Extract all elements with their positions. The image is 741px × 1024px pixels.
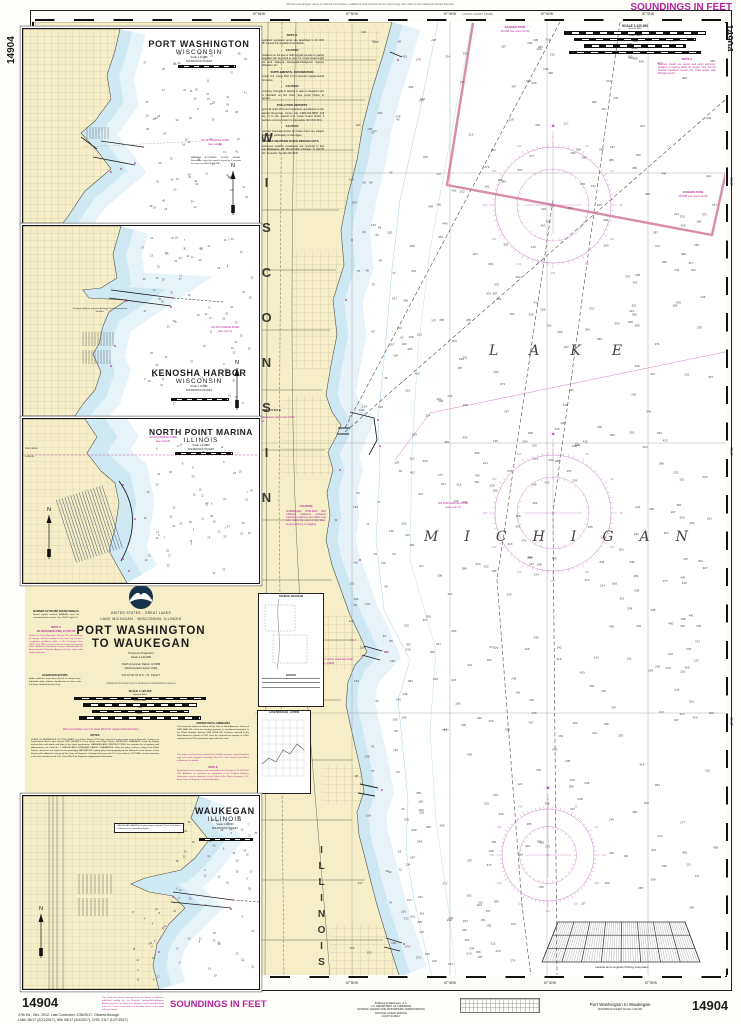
source-table-lines [262,684,320,688]
svg-text:437: 437 [529,721,534,725]
svg-text:✶: ✶ [550,123,555,130]
svg-text:368: 368 [528,431,533,435]
svg-text:413: 413 [594,656,599,660]
svg-text:264: 264 [523,440,528,444]
svg-text:411: 411 [695,874,700,878]
svg-text:293: 293 [536,768,541,772]
svg-text:155: 155 [387,230,392,234]
svg-text:195: 195 [662,864,667,868]
svg-text:154: 154 [352,200,357,204]
svg-text:389: 389 [603,218,608,222]
svg-text:201: 201 [493,793,498,797]
svg-text:75: 75 [357,269,361,273]
svg-text:435: 435 [597,425,602,429]
svg-text:242: 242 [557,645,562,649]
svg-text:168: 168 [373,40,378,44]
svg-text:180: 180 [551,579,556,583]
svg-text:270: 270 [490,853,495,857]
svg-text:414: 414 [629,309,634,313]
svg-text:35: 35 [375,233,379,237]
svg-text:348: 348 [428,204,433,208]
svg-text:292: 292 [447,394,452,398]
svg-text:300: 300 [612,582,617,586]
svg-text:445: 445 [402,692,407,696]
svg-text:286: 286 [527,555,532,559]
svg-text:392: 392 [589,684,594,688]
svg-text:441: 441 [689,614,694,618]
svg-text:398: 398 [576,147,581,151]
svg-text:205: 205 [635,273,640,277]
svg-text:264: 264 [463,919,468,923]
svg-text:447: 447 [529,562,534,566]
svg-text:423: 423 [663,438,668,442]
svg-text:314: 314 [534,573,539,577]
svg-text:247: 247 [504,409,509,413]
svg-text:438: 438 [650,608,655,612]
svg-text:200: 200 [515,691,520,695]
danger-zone-label-2: DANGER ZONE334.845 (see note A and B) [666,191,720,198]
svg-text:228: 228 [431,38,436,42]
svg-text:376: 376 [625,275,630,279]
svg-text:346: 346 [646,409,651,413]
svg-text:60: 60 [400,336,404,340]
inset-port-washington: 3629411832133725372014213524123039403027… [22,28,260,224]
svg-text:330: 330 [489,719,494,723]
svg-text:236: 236 [696,624,701,628]
svg-text:319: 319 [511,922,516,926]
svg-text:339: 339 [505,727,510,731]
svg-text:371: 371 [695,640,700,644]
svg-text:289: 289 [466,318,471,322]
svg-text:356: 356 [476,950,481,954]
land-notes-column: NOTE DRegulated navigation areas are des… [260,34,324,158]
inset-scale-bar [171,398,229,401]
svg-text:248: 248 [648,668,653,672]
chart-number-left-edge: 14904 [6,36,17,64]
svg-text:81: 81 [383,634,387,638]
svg-text:253: 253 [618,734,623,738]
svg-text:235: 235 [540,308,545,312]
svg-text:384: 384 [655,783,660,787]
svg-text:323: 323 [643,445,648,449]
svg-text:204: 204 [674,268,679,272]
datum-line2: (World Geodetic System 1984) [91,667,191,670]
svg-text:N: N [235,360,239,366]
svg-text:301: 301 [452,339,457,343]
svg-text:282: 282 [694,243,699,247]
svg-text:203: 203 [486,292,491,296]
svg-text:362: 362 [532,501,537,505]
svg-text:403: 403 [541,224,546,228]
svg-text:273: 273 [416,956,421,960]
svg-text:252: 252 [684,373,689,377]
svg-text:396: 396 [592,100,597,104]
svg-text:238: 238 [447,918,452,922]
svg-text:434: 434 [552,557,557,561]
svg-text:390: 390 [628,320,633,324]
svg-text:298: 298 [635,364,640,368]
svg-text:288: 288 [410,244,415,248]
svg-text:269: 269 [631,393,636,397]
svg-text:279: 279 [484,165,489,169]
svg-text:330: 330 [517,144,522,148]
svg-text:430: 430 [657,431,662,435]
svg-text:321: 321 [448,592,453,596]
svg-text:449: 449 [433,677,438,681]
svg-text:86: 86 [386,650,390,654]
noaa-logo [128,584,154,610]
svg-text:235: 235 [580,182,585,186]
svg-text:322: 322 [541,207,546,211]
svg-text:224: 224 [600,584,605,588]
svg-text:159: 159 [391,941,396,945]
svg-text:N: N [39,906,43,912]
ndz-label: NO DISCHARGE ZONE(see note S) [201,326,249,333]
svg-text:224: 224 [572,479,577,483]
svg-text:222: 222 [635,505,640,509]
svg-text:98: 98 [355,774,359,778]
svg-text:276: 276 [416,58,421,62]
svg-text:42: 42 [371,330,375,334]
svg-text:238: 238 [599,148,604,152]
svg-text:167: 167 [419,930,424,934]
svg-text:343: 343 [476,562,481,566]
svg-text:401: 401 [515,525,520,529]
svg-text:209: 209 [423,155,428,159]
svg-text:315: 315 [556,657,561,661]
svg-text:187: 187 [457,366,462,370]
svg-text:250: 250 [645,192,650,196]
svg-text:340: 340 [537,47,542,51]
svg-text:195: 195 [425,952,430,956]
svg-text:361: 361 [558,734,563,738]
see-chart-note-milwaukee: For Milwaukee Harbor see Chart 14924 [257,416,297,423]
svg-text:355: 355 [439,318,444,322]
svg-text:301: 301 [467,663,472,667]
svg-text:330: 330 [518,805,523,809]
svg-text:207: 207 [473,252,478,256]
svg-text:225: 225 [702,475,707,479]
svg-text:54: 54 [369,181,373,185]
svg-text:140: 140 [396,698,401,702]
svg-text:319: 319 [406,647,411,651]
svg-text:120: 120 [594,881,599,885]
svg-text:277: 277 [444,728,449,732]
svg-text:257: 257 [486,909,491,913]
chart-number-bottom-left: 14904 [22,995,58,1010]
svg-text:168: 168 [366,814,371,818]
svg-text:146: 146 [353,597,358,601]
svg-text:63: 63 [354,603,358,607]
svg-text:357: 357 [708,375,713,379]
svg-text:325: 325 [503,242,508,246]
svg-text:387: 387 [539,885,544,889]
facilities-note: Plans and facilities: see U.S. Coast Pil… [63,728,153,731]
svg-text:75: 75 [371,769,375,773]
svg-text:270: 270 [483,511,488,515]
svg-text:331: 331 [517,168,522,172]
svg-text:282: 282 [673,304,678,308]
svg-text:175: 175 [365,602,370,606]
svg-text:313: 313 [585,578,590,582]
ndz-label: NO DISCHARGE ZONE(see note B) [141,436,185,443]
svg-text:324: 324 [405,863,410,867]
print-calibration-strip [460,998,540,1013]
svg-text:427: 427 [418,895,423,899]
pipeline-caution: CAUTIONSUBMERGED PIPELINES AND CABLES: a… [286,505,326,529]
svg-text:225: 225 [417,333,422,337]
svg-text:227: 227 [671,510,676,514]
stability-note: The paper used has been selected for sta… [177,754,249,763]
svg-text:250: 250 [605,881,610,885]
soundings-banner-bottom: SOUNDINGS IN FEET [170,999,267,1010]
svg-text:292: 292 [547,324,552,328]
svg-text:207: 207 [436,642,441,646]
svg-text:22: 22 [399,868,403,872]
inset-note: Southport Marina: transient dockage, fue… [71,308,129,314]
svg-text:210: 210 [517,262,522,266]
svg-text:387: 387 [680,624,685,628]
svg-text:71: 71 [366,522,370,526]
svg-text:244: 244 [448,962,453,966]
svg-text:276: 276 [532,711,537,715]
svg-text:333: 333 [488,262,493,266]
svg-text:296: 296 [451,629,456,633]
svg-text:215: 215 [484,801,489,805]
svg-text:449: 449 [442,222,447,226]
svg-text:120: 120 [355,123,360,127]
source-table-lines [262,678,320,683]
svg-text:239: 239 [459,357,464,361]
svg-text:406: 406 [403,299,408,303]
svg-text:231: 231 [589,306,594,310]
state-line-label-top: WISCONSIN [25,448,38,451]
svg-text:150: 150 [585,570,590,574]
svg-text:360: 360 [632,166,637,170]
source-diagram-box: SOURCE DIAGRAM SOURCE [258,593,324,707]
svg-text:290: 290 [549,458,554,462]
svg-text:194: 194 [491,148,496,152]
svg-text:122: 122 [349,619,354,623]
svg-text:446: 446 [639,59,644,63]
inset-title: WAUKEGAN ILLINOIS Scale 1:10,000 SOUNDIN… [193,806,257,830]
state-name-wisconsin: WISCONSIN [259,130,274,580]
svg-text:315: 315 [491,942,496,946]
svg-text:188: 188 [681,617,686,621]
svg-text:337: 337 [431,319,436,323]
svg-text:37: 37 [392,271,396,275]
svg-text:446: 446 [661,171,666,175]
svg-text:277: 277 [663,579,668,583]
svg-text:210: 210 [518,902,523,906]
svg-text:167: 167 [392,297,397,301]
svg-text:361: 361 [419,912,424,916]
inset-north-point-marina: 1314241230271211762312201715192224262123… [22,418,260,584]
svg-text:321: 321 [418,492,423,496]
svg-text:386: 386 [548,71,553,75]
svg-text:220: 220 [417,920,422,924]
svg-text:235: 235 [570,778,575,782]
svg-text:372: 372 [463,52,468,56]
svg-text:453: 453 [411,269,416,273]
state-line-label-bottom: ILLINOIS [25,456,34,459]
svg-text:318: 318 [529,698,534,702]
svg-text:209: 209 [426,615,431,619]
svg-text:295: 295 [565,759,570,763]
svg-text:438: 438 [609,625,614,629]
svg-text:202: 202 [410,457,415,461]
svg-text:132: 132 [354,679,359,683]
svg-text:402: 402 [689,521,694,525]
svg-text:329: 329 [679,515,684,519]
svg-text:26: 26 [363,230,367,234]
inset-title: PORT WASHINGTON WISCONSIN Scale 1:10,000… [143,39,255,63]
svg-text:217: 217 [564,122,569,126]
svg-text:366: 366 [659,462,664,466]
svg-text:185: 185 [696,219,701,223]
svg-text:252: 252 [573,721,578,725]
svg-text:314: 314 [445,55,450,59]
svg-text:330: 330 [422,459,427,463]
svg-text:382: 382 [526,79,531,83]
svg-text:256: 256 [461,723,466,727]
svg-text:265: 265 [634,588,639,592]
svg-text:424: 424 [517,782,522,786]
svg-text:300: 300 [497,825,502,829]
svg-text:376: 376 [575,443,580,447]
update-note: This chart has been corrected from the N… [102,997,164,1012]
lake-levels-box: LAKE MICHIGAN - HURON [257,710,311,794]
svg-text:293: 293 [527,41,532,45]
see-chart-note-racine: For harbor detail see Chart No. 14828 [322,658,356,665]
svg-text:216: 216 [468,133,473,137]
svg-text:244: 244 [469,947,474,951]
svg-text:158: 158 [401,716,406,720]
svg-text:228: 228 [490,483,495,487]
svg-text:269: 269 [633,574,638,578]
svg-text:219: 219 [467,951,472,955]
svg-text:229: 229 [509,117,514,121]
svg-text:330: 330 [517,452,522,456]
inset-note: WAUKEGAN HARBOR: Federal project depth 1… [114,823,184,833]
svg-text:395: 395 [636,153,641,157]
svg-text:346: 346 [585,328,590,332]
svg-text:287: 287 [638,886,643,890]
svg-text:277: 277 [529,154,534,158]
svg-text:334: 334 [627,607,632,611]
svg-text:220: 220 [709,711,714,715]
title-region2: LAKE MICHIGAN - WISCONSIN, ILLINOIS [55,617,227,622]
svg-text:285: 285 [455,701,460,705]
svg-text:266: 266 [636,624,641,628]
svg-text:149: 149 [353,505,358,509]
svg-text:271: 271 [655,342,660,346]
svg-text:157: 157 [389,343,394,347]
svg-text:413: 413 [651,848,656,852]
svg-text:203: 203 [477,903,482,907]
svg-text:29: 29 [374,552,378,556]
svg-text:317: 317 [688,261,693,265]
svg-text:282: 282 [485,185,490,189]
danger-zone-label-1: DANGER ZONE334.845 (see note A and B) [490,26,540,33]
svg-text:460: 460 [668,622,673,626]
svg-text:249: 249 [432,959,437,963]
svg-text:436: 436 [534,636,539,640]
svg-text:205: 205 [404,818,409,822]
svg-text:241: 241 [613,96,618,100]
info-line: Additional information can be obtained a… [65,682,217,685]
svg-text:286: 286 [426,825,431,829]
svg-text:249: 249 [543,67,548,71]
svg-text:346: 346 [700,295,705,299]
svg-text:281: 281 [677,503,682,507]
svg-text:412: 412 [534,300,539,304]
svg-text:427: 427 [674,718,679,722]
svg-text:288: 288 [555,459,560,463]
svg-text:295: 295 [486,924,491,928]
title-region1: UNITED STATES - GREAT LAKES [65,611,217,615]
svg-text:269: 269 [651,878,656,882]
svg-text:246: 246 [511,676,516,680]
svg-text:210: 210 [550,53,555,57]
svg-text:384: 384 [438,235,443,239]
svg-text:66: 66 [376,699,380,703]
svg-text:214: 214 [518,853,523,857]
landmarks-note: CONSPICUOUS LANDMARKS The horizontal ref… [177,722,249,744]
svg-text:409: 409 [557,330,562,334]
svg-text:409: 409 [467,753,472,757]
svg-text:218: 218 [456,483,461,487]
svg-text:368: 368 [632,313,637,317]
svg-text:181: 181 [481,918,486,922]
svg-text:102: 102 [367,950,372,954]
svg-text:349: 349 [501,180,506,184]
svg-text:240: 240 [492,545,497,549]
svg-text:120: 120 [610,545,615,549]
svg-text:195: 195 [436,202,441,206]
svg-text:309: 309 [614,321,619,325]
svg-text:261: 261 [707,517,712,521]
svg-text:188: 188 [491,569,496,573]
svg-text:311: 311 [460,80,465,84]
svg-text:386: 386 [462,567,467,571]
svg-text:202: 202 [460,190,465,194]
svg-text:348: 348 [463,403,468,407]
svg-text:197: 197 [694,659,699,663]
svg-text:429: 429 [580,671,585,675]
svg-text:240: 240 [497,881,502,885]
svg-text:281: 281 [410,543,415,547]
svg-text:226: 226 [529,313,534,317]
inset-title: KENOSHA HARBOR WISCONSIN Scale 1:10,000 … [141,368,257,392]
svg-text:272: 272 [442,881,447,885]
svg-text:129: 129 [359,408,364,412]
svg-text:271: 271 [533,457,538,461]
svg-text:347: 347 [437,172,442,176]
svg-text:352: 352 [705,768,710,772]
svg-text:✶: ✶ [550,431,555,438]
svg-text:310: 310 [691,268,696,272]
svg-text:298: 298 [581,156,586,160]
svg-text:425: 425 [539,840,544,844]
svg-text:450: 450 [632,810,637,814]
top-fine-print: NOAA encourages users to submit correcti… [250,3,490,7]
svg-text:140: 140 [390,659,395,663]
svg-text:278: 278 [686,647,691,651]
note-b-block: NOTE B Regulations for the danger zones … [177,766,249,785]
svg-text:421: 421 [525,844,530,848]
svg-text:332: 332 [487,658,492,662]
